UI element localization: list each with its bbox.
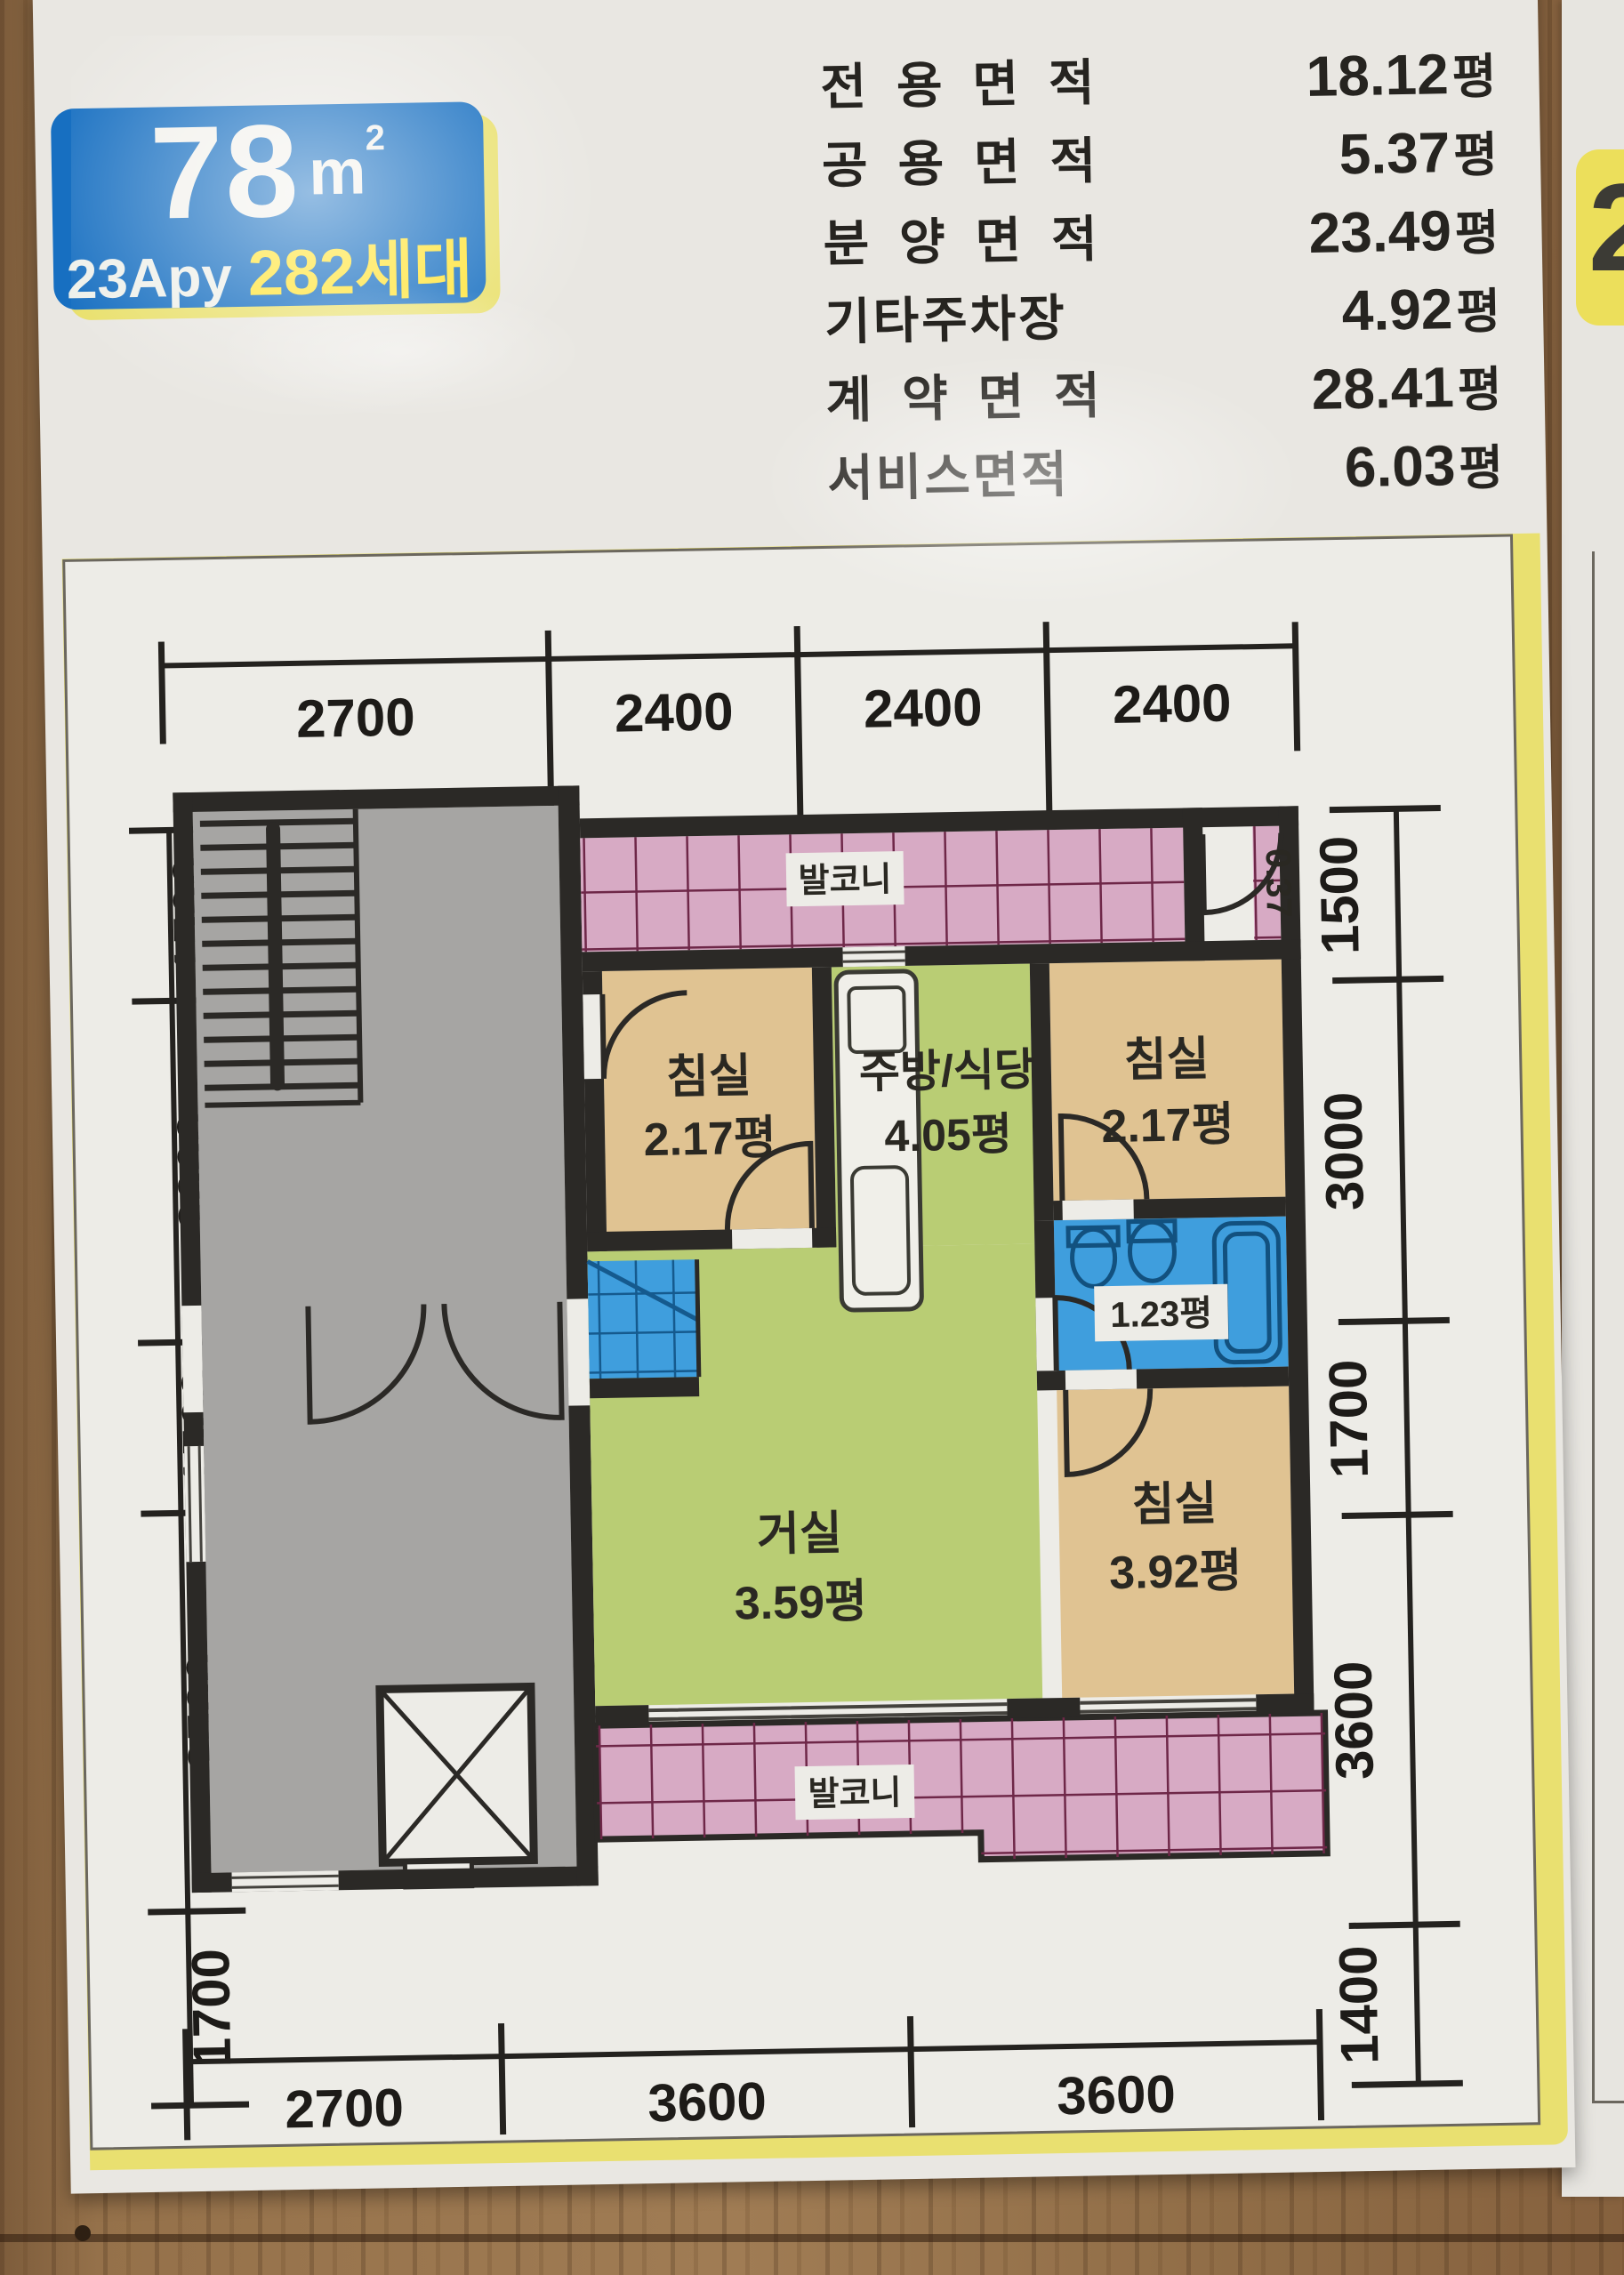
neighbor-plan-border (1592, 551, 1595, 2101)
row-label: 서비스면적 (826, 434, 1070, 510)
photo-of-floorplan-sign: { "badge": { "area": "78", "unit_base": … (0, 0, 1624, 2275)
neighbor-badge-digit: 2 (1588, 165, 1624, 290)
dim-top-3: 2400 (863, 677, 983, 738)
bedroom-top-left-area: 2.17평 (643, 1113, 776, 1167)
dim-top-1: 2700 (296, 687, 416, 749)
badge-area-line: 78 m 2 (149, 104, 386, 240)
badge-area-unit: m (309, 140, 366, 205)
badge-households: 282세대 (247, 237, 473, 305)
balcony-bottom-label: 발코니 (808, 1774, 902, 1813)
living-label: 거실 (757, 1507, 843, 1561)
sign-sheet: 78 m 2 23Apy 282세대 전용면적 18.12평 공용면적 5.37… (32, 0, 1575, 2194)
row-value: 28.41 (1311, 354, 1454, 422)
table-row: 전용면적 18.12평 (820, 32, 1497, 122)
row-unit: 평 (1459, 428, 1504, 499)
row-label: 전용면적 (820, 42, 1125, 119)
row-value: 6.03 (1344, 432, 1456, 500)
row-unit: 평 (1453, 115, 1499, 186)
unit-size-badge: 78 m 2 23Apy 282세대 (51, 101, 486, 309)
table-row: 기타주차장 4.92평 (824, 267, 1500, 357)
bedroom-bottom-right-label: 침실 (1131, 1478, 1218, 1531)
row-unit: 평 (1454, 193, 1499, 264)
row-value: 5.37 (1339, 119, 1451, 187)
floor-plan: 2700 2400 2400 2400 1500 3000 1500 3500 … (62, 534, 1543, 2152)
row-value: 18.12 (1306, 41, 1449, 109)
bedroom-bottom-right (1057, 1387, 1294, 1699)
dim-bottom-3: 3600 (1057, 2064, 1177, 2126)
dim-top-2: 2400 (614, 681, 734, 743)
row-label: 기타주차장 (824, 277, 1067, 354)
kitchen-label: 주방/식당 (858, 1044, 1035, 1097)
dim-right-5: 1400 (1328, 1945, 1389, 2065)
row-value: 4.92 (1341, 276, 1453, 343)
dim-right-1: 1500 (1308, 835, 1370, 955)
dim-right-2: 3000 (1313, 1091, 1374, 1211)
utility-closet (588, 1259, 700, 1398)
badge-area-value: 78 (149, 106, 301, 240)
neighbor-badge: 2 (1576, 149, 1624, 326)
badge-type-label: 23Apy (66, 250, 232, 308)
dim-left-5: 1700 (181, 1948, 242, 2068)
badge-area-unit-sup: 2 (365, 120, 385, 156)
dim-bottom-2: 3600 (647, 2071, 768, 2133)
dim-top-4: 2400 (1112, 673, 1232, 735)
badge-type-line: 23Apy 282세대 (66, 237, 473, 309)
table-row: 공용면적 5.37평 (821, 110, 1498, 200)
table-row: 서비스면적 6.03평 (826, 423, 1503, 513)
dim-right-4: 3600 (1323, 1660, 1385, 1781)
ledge-area-label: 0.37 (1258, 848, 1298, 918)
area-summary-table: 전용면적 18.12평 공용면적 5.37평 분양면적 23.49평 기타주차장… (820, 32, 1504, 513)
bedroom-top-left-label: 침실 (666, 1050, 752, 1104)
dim-bottom-1: 2700 (285, 2078, 405, 2139)
row-label: 공용면적 (821, 120, 1126, 197)
row-label: 계약면적 (825, 355, 1130, 432)
balcony-top-label: 발코니 (798, 861, 892, 900)
row-label: 분양면적 (823, 198, 1128, 276)
bathroom-area-label: 1.23평 (1110, 1294, 1212, 1335)
row-unit: 평 (1457, 350, 1502, 421)
row-unit: 평 (1451, 36, 1497, 108)
row-value: 23.49 (1308, 197, 1451, 266)
living-area-label: 3.59평 (734, 1576, 867, 1630)
table-row: 분양면적 23.49평 (823, 189, 1499, 278)
bedroom-bottom-right-area: 3.92평 (1109, 1545, 1242, 1599)
stairwell-block (173, 785, 599, 1893)
kitchen-area: 4.05평 (884, 1109, 1012, 1161)
bedroom-top-right-area: 2.17평 (1101, 1099, 1234, 1154)
screw-head (75, 2225, 91, 2241)
wood-plank-joint (0, 2234, 1624, 2242)
neighbor-plan-border-bottom (1592, 2101, 1624, 2103)
row-unit: 평 (1456, 271, 1501, 342)
table-row: 계약면적 28.41평 (825, 345, 1502, 435)
dim-right-3: 1700 (1318, 1359, 1379, 1479)
elevator-shaft (380, 1686, 535, 1887)
bedroom-top-right-label: 침실 (1123, 1033, 1210, 1087)
